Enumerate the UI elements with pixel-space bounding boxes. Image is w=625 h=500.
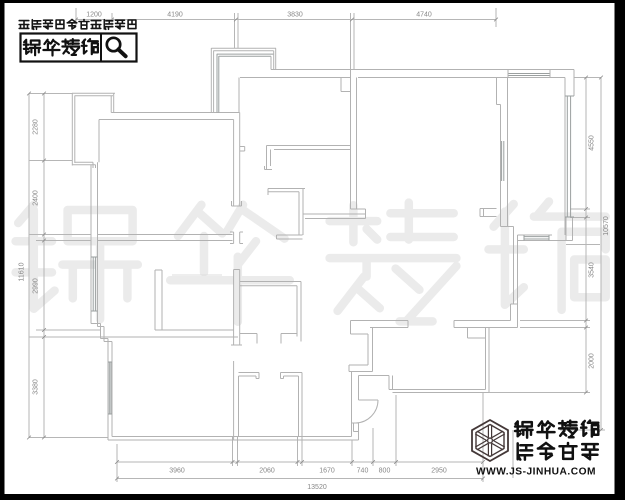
svg-text:2990: 2990	[33, 278, 40, 294]
svg-text:3540: 3540	[589, 262, 596, 278]
svg-text:13520: 13520	[307, 484, 327, 491]
svg-text:1200: 1200	[86, 12, 102, 19]
svg-text:2400: 2400	[33, 190, 40, 206]
svg-text:1670: 1670	[319, 468, 335, 475]
svg-text:10570: 10570	[603, 216, 610, 236]
svg-text:11610: 11610	[19, 262, 26, 281]
svg-text:2060: 2060	[259, 468, 275, 475]
svg-text:2950: 2950	[431, 468, 447, 475]
svg-text:740: 740	[357, 468, 369, 475]
svg-text:3380: 3380	[33, 379, 40, 395]
svg-text:4740: 4740	[416, 12, 432, 19]
svg-text:3830: 3830	[287, 12, 303, 19]
svg-text:2000: 2000	[589, 353, 596, 369]
svg-text:3960: 3960	[169, 468, 185, 475]
svg-text:4550: 4550	[589, 135, 596, 151]
svg-text:4190: 4190	[167, 12, 183, 19]
svg-text:2280: 2280	[33, 119, 40, 135]
svg-text:WWW.JS-JINHUA.COM: WWW.JS-JINHUA.COM	[476, 467, 596, 478]
svg-text:800: 800	[379, 468, 391, 475]
